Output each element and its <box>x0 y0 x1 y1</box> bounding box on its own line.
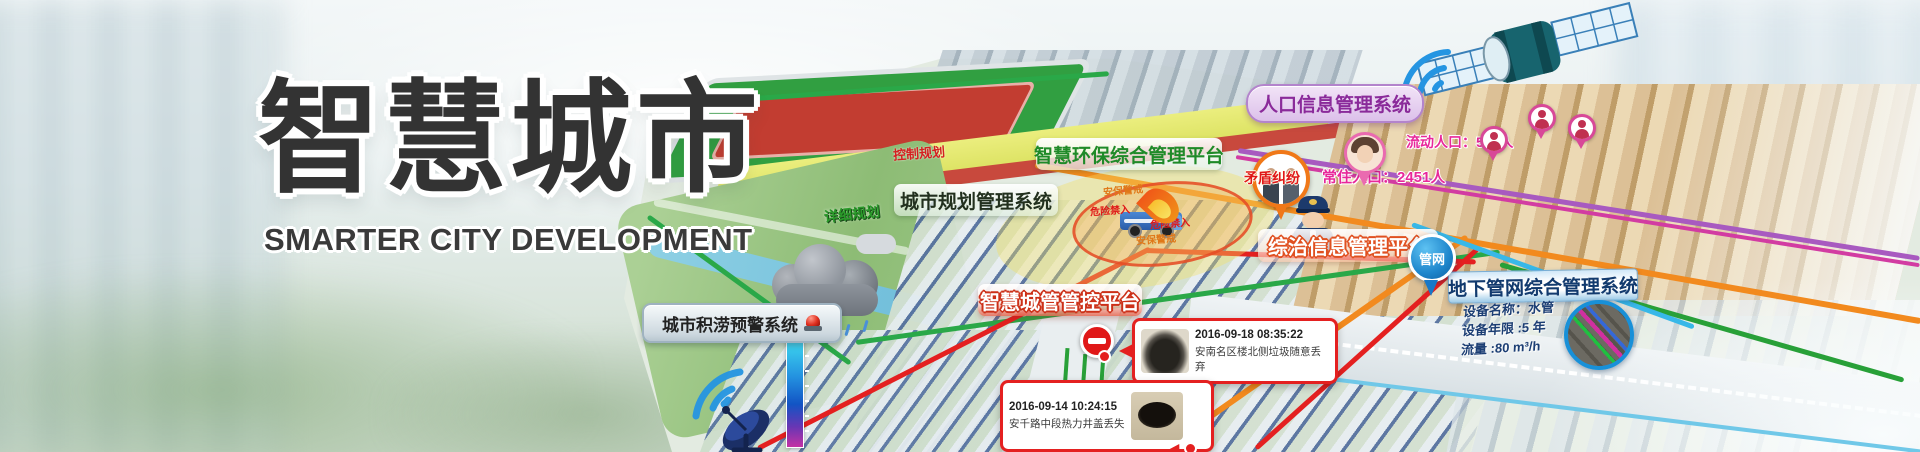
pin-tail <box>1488 152 1498 161</box>
population-mini-pin <box>1568 114 1594 152</box>
police-cap <box>1298 196 1328 209</box>
label-env-platform: 智慧环保综合管理平台 <box>1036 138 1222 170</box>
manhole-photo <box>1131 392 1183 440</box>
fire-icon <box>1145 185 1176 226</box>
label-city-mgmt-text: 智慧城管管控平台 <box>980 286 1140 315</box>
person-avatar <box>1480 126 1508 154</box>
satellite-dish-icon <box>662 338 782 452</box>
garbage-photo <box>1141 329 1189 373</box>
person-avatar <box>1568 114 1596 142</box>
small-cloud <box>856 234 896 254</box>
label-governance-text: 综治信息管理平台 <box>1268 231 1428 260</box>
pin-tail <box>1274 204 1288 220</box>
label-flood-warning-text: 城市积涝预警系统 <box>662 311 798 336</box>
label-population-system: 人口信息管理系统 <box>1246 84 1424 123</box>
annotation-security-alert: 安保警戒 <box>1136 230 1177 248</box>
annotation-dispute: 矛盾纠纷 <box>1244 168 1300 188</box>
pipe-network-pin: 管网 <box>1408 234 1454 302</box>
page-title: 智慧城市 <box>258 40 762 217</box>
annotation-control-planning: 控制规划 <box>892 141 945 164</box>
raindrop <box>862 320 868 332</box>
label-city-mgmt-platform: 智慧城管管控平台 <box>978 284 1142 316</box>
annotation-danger-no-entry: 危险禁入 <box>1090 201 1131 219</box>
siren-icon <box>804 315 822 331</box>
police-face <box>1302 212 1324 229</box>
incident-location-dot <box>1184 442 1197 452</box>
label-urban-planning-text: 城市规划管理系统 <box>900 187 1052 214</box>
label-population-text: 人口信息管理系统 <box>1259 90 1411 117</box>
woman-avatar <box>1344 132 1386 174</box>
pin-tail <box>1357 172 1371 186</box>
label-env-platform-text: 智慧环保综合管理平台 <box>1034 141 1224 168</box>
incident-time: 2016-09-18 08:35:22 <box>1195 329 1329 341</box>
incident-location-dot <box>1098 350 1111 363</box>
population-mini-pin <box>1480 126 1506 164</box>
incident-time: 2016-09-14 10:24:15 <box>1009 401 1125 413</box>
pipe-details: 设备名称：水管 设备年限 :5 年 流量 :80 m³/h <box>1461 298 1555 360</box>
label-flood-warning-system: 城市积涝预警系统 <box>642 303 842 343</box>
resident-avatar-pin <box>1344 132 1384 188</box>
incident-desc: 安南名区楼北侧垃圾随意丢弃 <box>1195 344 1329 374</box>
pipe-pin-circle: 管网 <box>1408 234 1456 282</box>
pin-tail <box>1576 140 1586 149</box>
incident-callout-garbage: 2016-09-18 08:35:22 安南名区楼北侧垃圾随意丢弃 <box>1132 318 1338 384</box>
underground-pipe-photo <box>1564 300 1634 370</box>
label-pipe-network-text: 地下管网综合管理系统 <box>1448 271 1638 301</box>
label-urban-planning-system: 城市规划管理系统 <box>894 184 1058 216</box>
incident-callout-manhole: 2016-09-14 10:24:15 安千路中段热力井盖丢失 <box>1000 380 1214 452</box>
pin-tail <box>1424 280 1438 296</box>
page-subtitle: SMARTER CITY DEVELOPMENT <box>264 222 753 258</box>
incident-desc: 安千路中段热力井盖丢失 <box>1009 416 1125 431</box>
pin-tail <box>1536 130 1546 139</box>
smart-city-hero-banner: 智慧城市 SMARTER CITY DEVELOPMENT 城市积涝预警系统 智… <box>0 0 1920 452</box>
